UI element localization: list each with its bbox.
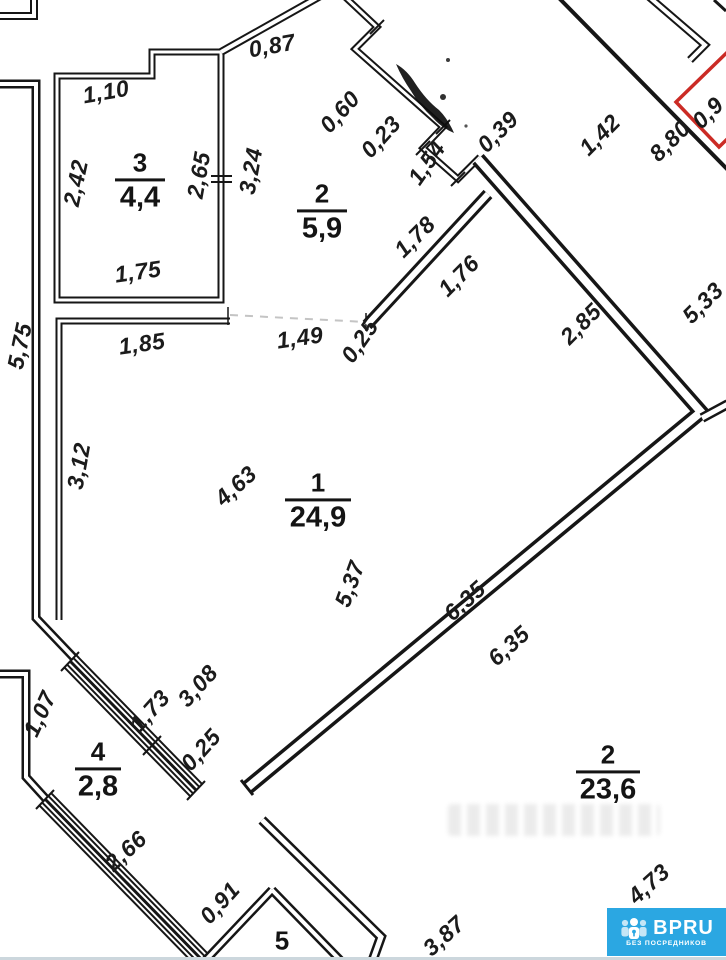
room-label-5: 5 (275, 927, 289, 954)
people-icon (619, 916, 649, 940)
room-number: 4 (75, 738, 121, 765)
room-area: 24,9 (285, 503, 351, 535)
room-area: 5,9 (297, 214, 347, 246)
logo-tagline: БЕЗ ПОСРЕДНИКОВ (626, 941, 707, 948)
bpru-logo[interactable]: BPRU БЕЗ ПОСРЕДНИКОВ (607, 908, 726, 956)
room-area: 4,4 (115, 183, 165, 215)
room-label-1: 1 24,9 (285, 469, 351, 534)
room-number: 1 (285, 469, 351, 496)
floorplan-page: 0,87 1,10 2,42 2,65 3,24 0,60 0,23 1,54 … (0, 0, 726, 960)
room-label-3: 3 4,4 (115, 149, 165, 214)
room-number: 5 (275, 927, 289, 954)
room-number: 3 (115, 149, 165, 176)
room-area: 23,6 (576, 775, 640, 807)
wall-core (648, 0, 705, 60)
room-label-2b: 2 23,6 (576, 741, 640, 806)
room-label-4: 4 2,8 (75, 738, 121, 803)
room-number: 2 (297, 180, 347, 207)
room-number: 2 (576, 741, 640, 768)
logo-brand-text: BPRU (653, 918, 714, 938)
window-band-lower (36, 790, 204, 960)
wall (0, 0, 34, 16)
dashed-boundary (230, 315, 366, 322)
watermark (448, 804, 660, 836)
wall-fragment (714, 0, 726, 11)
room-label-2: 2 5,9 (297, 180, 347, 245)
room-area: 2,8 (75, 772, 121, 804)
